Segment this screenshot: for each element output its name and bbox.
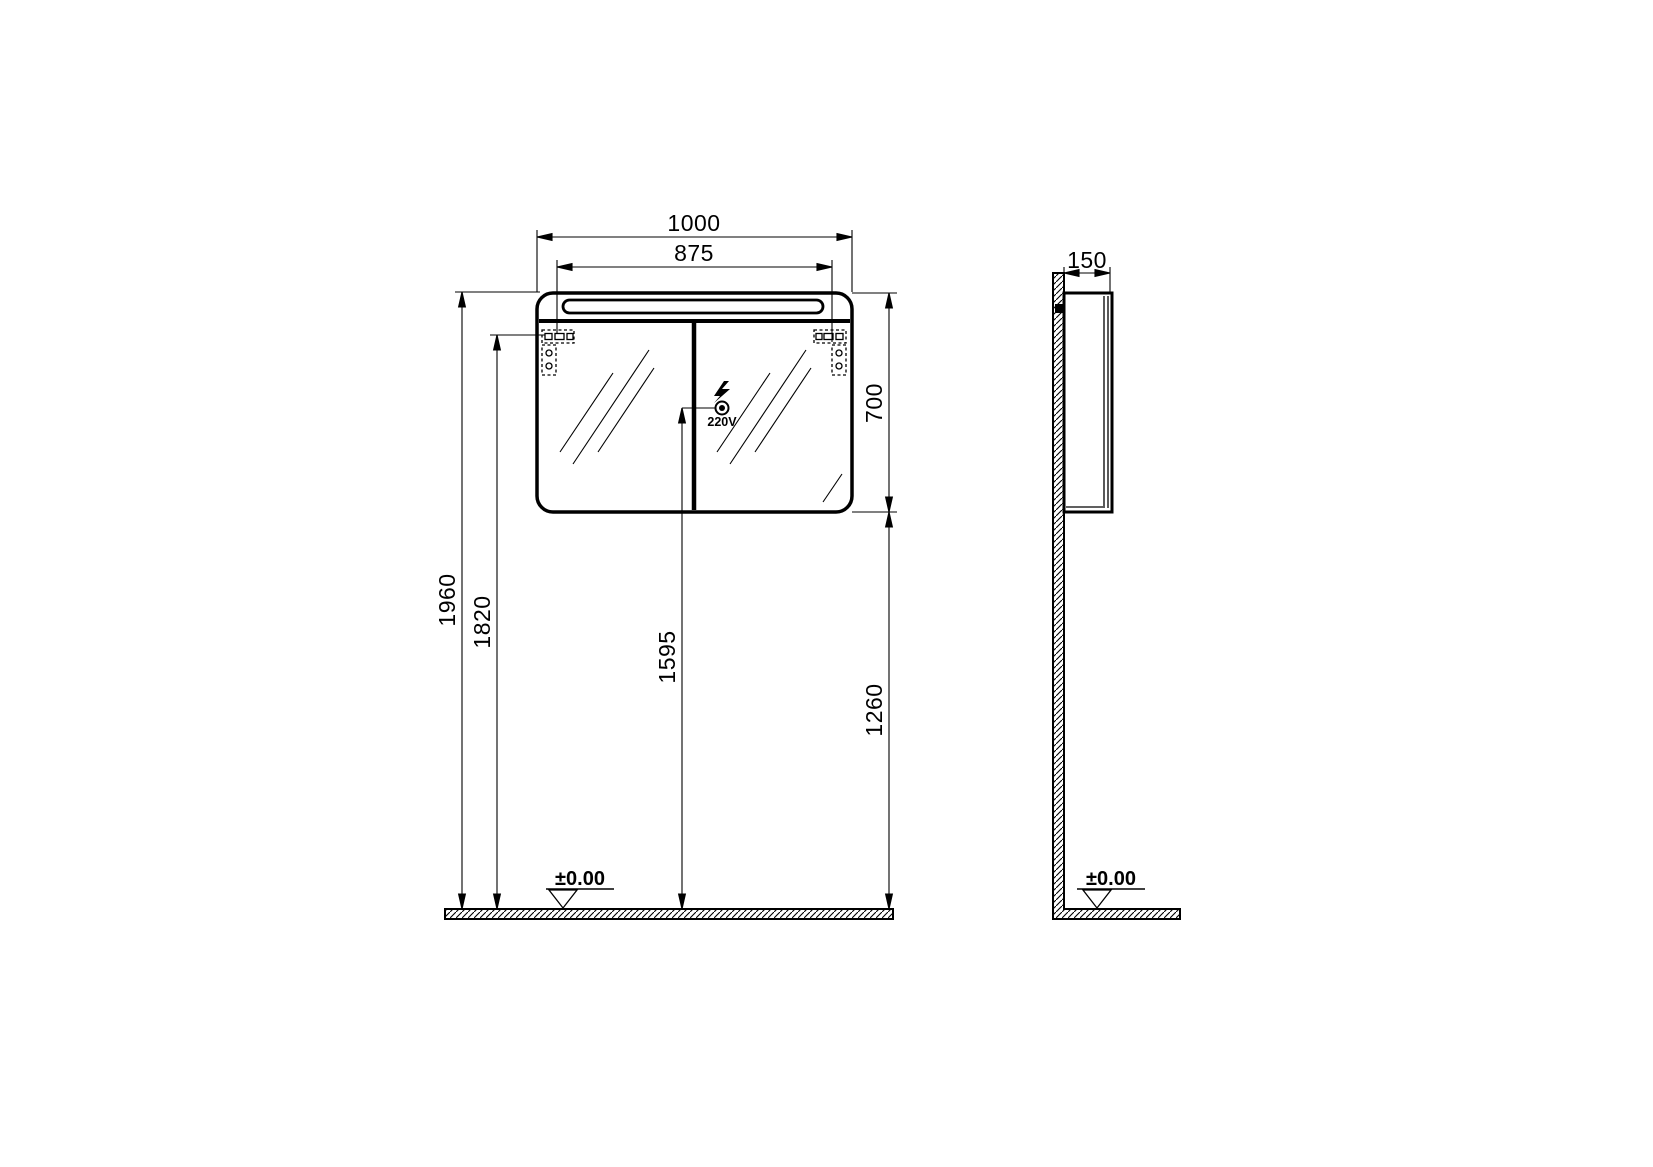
front-floor-level-label: ±0.00 bbox=[555, 868, 605, 890]
level-marker-icon bbox=[1083, 890, 1111, 908]
wall-mount-bracket bbox=[1055, 304, 1064, 313]
level-marker-icon bbox=[549, 890, 577, 908]
dim-label-height-outlet: 1595 bbox=[654, 630, 680, 683]
dim-label-height-total: 1960 bbox=[434, 573, 460, 626]
front-level-marker bbox=[546, 889, 614, 908]
dim-label-width-mounting: 875 bbox=[674, 240, 714, 266]
drawing-sheet: 1000 875 1960 1820 1595 700 1260 220V ±0… bbox=[0, 0, 1653, 1167]
technical-drawing: 1000 875 1960 1820 1595 700 1260 220V ±0… bbox=[0, 0, 1653, 1167]
front-floor-line bbox=[445, 909, 893, 919]
dim-label-width-total: 1000 bbox=[667, 210, 720, 236]
outlet-voltage-label: 220V bbox=[707, 415, 737, 429]
cabinet-side-profile bbox=[1064, 293, 1112, 512]
led-light-strip bbox=[563, 300, 823, 313]
side-level-marker bbox=[1077, 889, 1145, 908]
side-floor-level-label: ±0.00 bbox=[1086, 868, 1136, 890]
dim-label-depth: 150 bbox=[1067, 247, 1107, 273]
front-view bbox=[445, 293, 893, 919]
dim-label-height-mounting: 1820 bbox=[469, 595, 495, 648]
dim-label-cabinet-height: 700 bbox=[861, 383, 887, 423]
dim-label-height-cabinet-bottom: 1260 bbox=[861, 683, 887, 736]
side-view bbox=[1053, 273, 1180, 919]
